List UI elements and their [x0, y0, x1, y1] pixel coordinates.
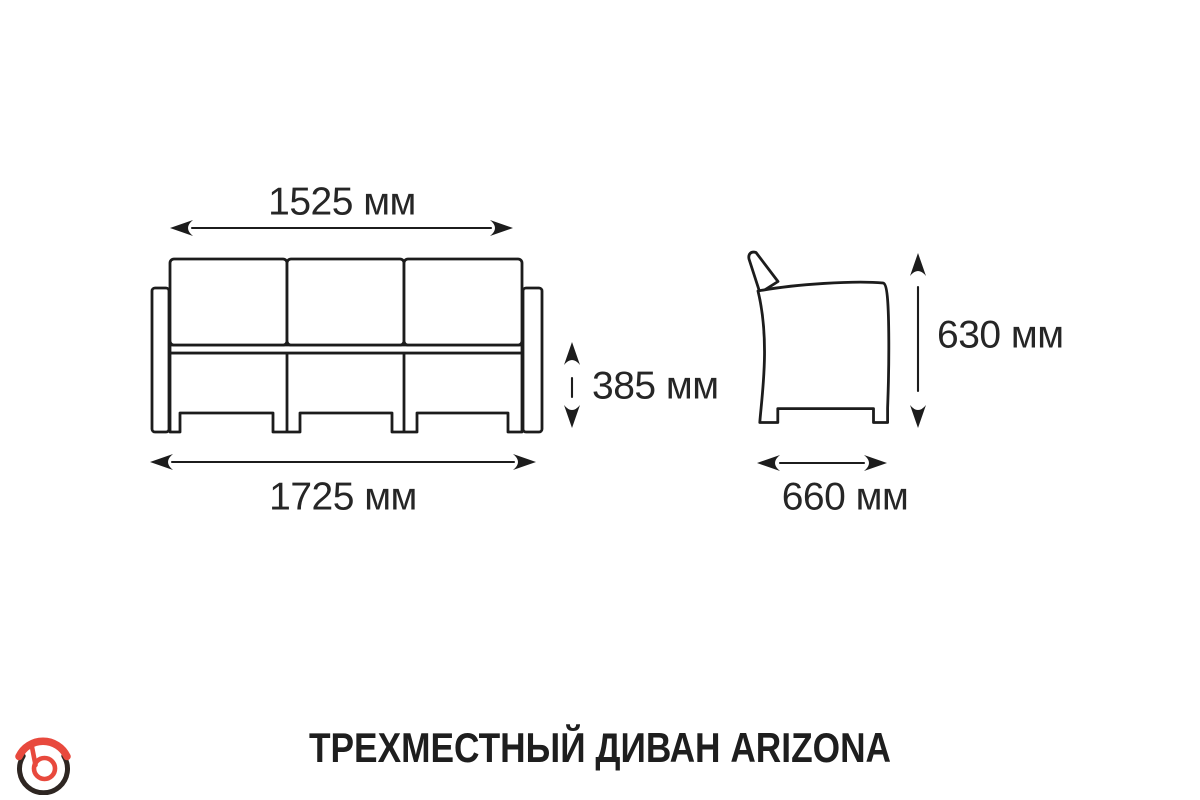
- brand-logo: :rattan ® BORN IN ITALY: [15, 735, 230, 795]
- product-dimension-sheet: 1525 мм 1725 мм 385 мм 630 мм 660 мм ТРЕ…: [0, 0, 1200, 800]
- sofa-front-view: [152, 259, 542, 432]
- dim-arrow-side-height: [910, 253, 926, 428]
- side-body-with-legs: [758, 282, 889, 422]
- dim-label-side-depth: 660 мм: [782, 478, 909, 517]
- front-back-cushion-3: [404, 259, 522, 345]
- front-right-armrest: [523, 288, 542, 432]
- dim-arrow-front-bottom-width: [150, 454, 536, 470]
- dim-label-front-seat-height: 385 мм: [592, 367, 719, 406]
- brattan-logo-icon: [15, 735, 73, 795]
- dim-arrow-front-seat-height: [564, 342, 580, 428]
- sofa-side-view: [749, 252, 889, 422]
- front-back-cushion-2: [287, 259, 404, 345]
- front-left-armrest: [152, 288, 169, 432]
- dim-label-side-height: 630 мм: [937, 316, 1064, 355]
- product-title: ТРЕХМЕСТНЫЙ ДИВАН ARIZONA: [309, 727, 891, 769]
- logo-red-arc: [19, 741, 67, 756]
- front-back-cushion-1: [170, 259, 287, 345]
- front-base-with-legs: [170, 353, 522, 432]
- dim-label-front-bottom-width: 1725 мм: [269, 478, 417, 517]
- logo-b-bowl: [34, 758, 55, 779]
- dim-arrow-side-depth: [757, 455, 887, 471]
- dim-label-front-top-width: 1525 мм: [268, 183, 416, 222]
- logo-open-circle: [20, 756, 68, 793]
- logo-b-stem: [32, 747, 36, 765]
- side-backrest: [749, 252, 778, 293]
